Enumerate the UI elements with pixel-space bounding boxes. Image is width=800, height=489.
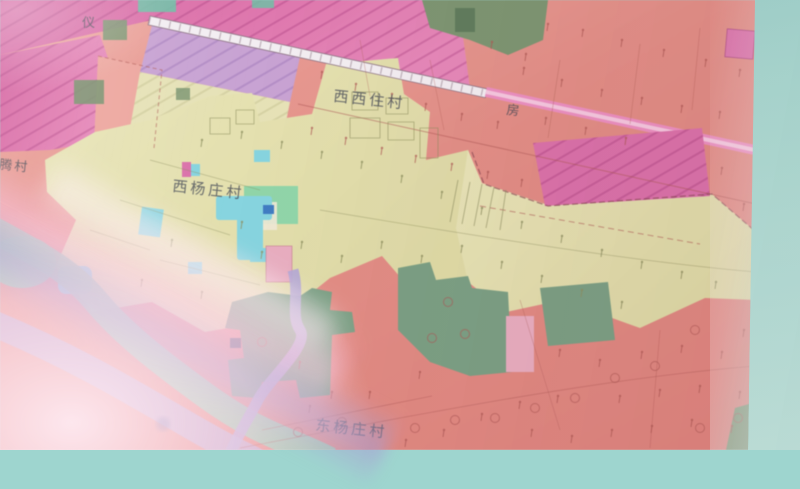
paper-edge-highlight <box>710 0 755 450</box>
label-fang: 房 <box>506 102 523 118</box>
smudged-road-label <box>156 417 170 431</box>
label-yi: 仪 <box>82 15 97 30</box>
map-photo: 仪 西西住村 房 西杨庄村 东杨庄村 刘腾村 <box>0 0 800 450</box>
